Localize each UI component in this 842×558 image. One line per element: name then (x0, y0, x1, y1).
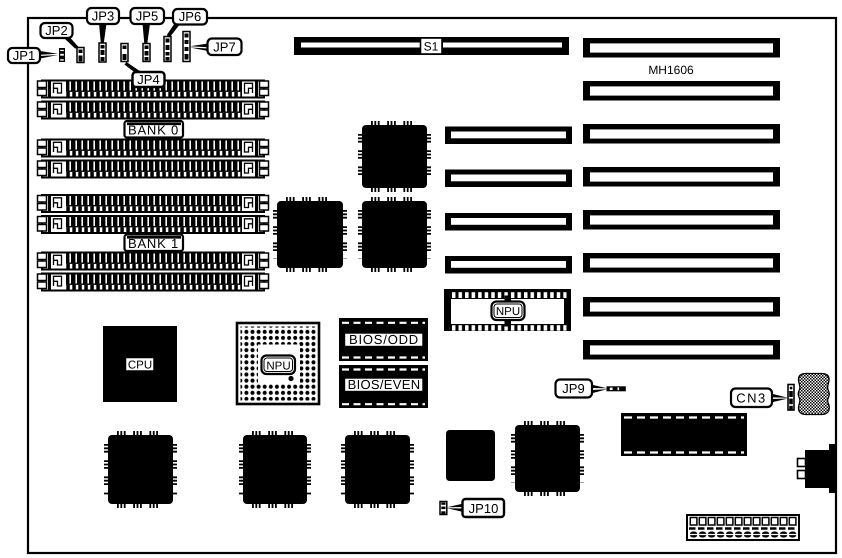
svg-text:BIOS/ODD: BIOS/ODD (349, 332, 419, 347)
svg-text:MH1606: MH1606 (648, 63, 694, 77)
svg-text:JP2: JP2 (45, 23, 67, 38)
svg-text:JP3: JP3 (92, 9, 114, 24)
svg-text:JP6: JP6 (179, 9, 201, 24)
svg-text:JP5: JP5 (136, 9, 158, 24)
svg-text:BANK 0: BANK 0 (128, 123, 179, 138)
svg-text:BIOS/EVEN: BIOS/EVEN (348, 377, 421, 392)
svg-text:CPU: CPU (128, 359, 152, 371)
svg-text:JP9: JP9 (562, 381, 584, 396)
svg-text:JP1: JP1 (13, 48, 35, 63)
svg-text:S1: S1 (424, 40, 439, 54)
svg-text:JP10: JP10 (469, 501, 499, 516)
svg-text:NPU: NPU (266, 360, 290, 372)
svg-text:JP4: JP4 (137, 72, 159, 87)
svg-text:BANK 1: BANK 1 (128, 236, 179, 251)
svg-text:JP7: JP7 (213, 40, 235, 55)
svg-text:NPU: NPU (496, 306, 520, 318)
svg-text:CN3: CN3 (736, 390, 767, 405)
